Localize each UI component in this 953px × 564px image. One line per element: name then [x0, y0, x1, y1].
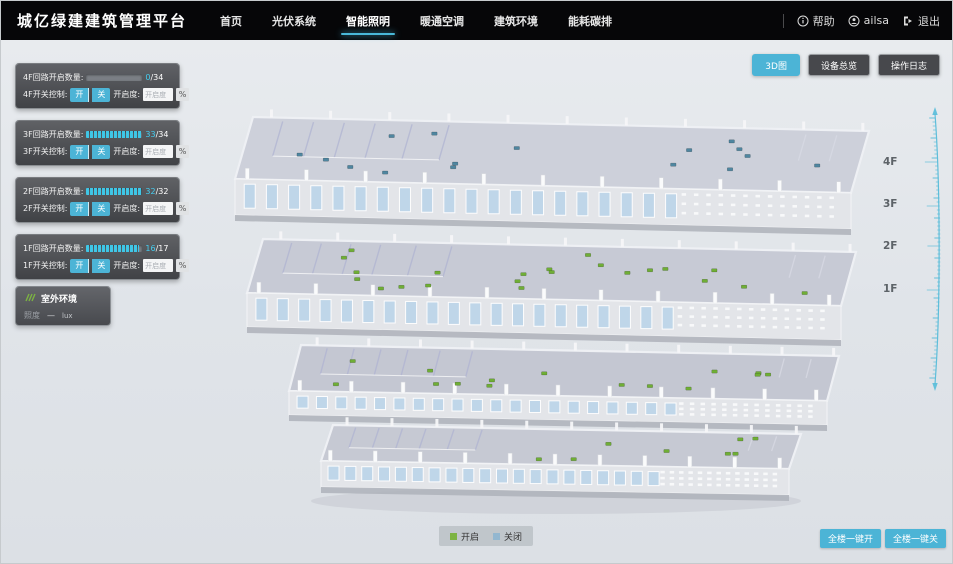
circuit-progress-bar	[86, 131, 142, 138]
dim-label: 开启度:	[113, 89, 140, 100]
outdoor-env-icon	[24, 293, 36, 305]
switch-on-button[interactable]: 开	[70, 88, 89, 102]
dim-input[interactable]	[143, 88, 173, 101]
switch-control-label: 4F开关控制:	[23, 89, 67, 100]
user-menu[interactable]: ailsa	[848, 14, 889, 27]
floor-marker-4f[interactable]: 4F	[883, 156, 897, 168]
dim-label: 开启度:	[113, 203, 140, 214]
legend-on-swatch	[450, 533, 457, 540]
illuminance-unit: lux	[62, 312, 73, 320]
floor-panel-2f: 2F回路开启数量: 32/32 2F开关控制: 开 关 开启度: %	[15, 177, 180, 223]
percent-button[interactable]: %	[176, 259, 189, 272]
user-avatar-icon	[848, 15, 860, 27]
operation-log-button[interactable]: 操作日志	[878, 54, 940, 76]
dim-input[interactable]	[143, 202, 173, 215]
illuminance-value: —	[47, 311, 55, 320]
floor-panel-3f: 3F回路开启数量: 33/34 3F开关控制: 开 关 开启度: %	[15, 120, 180, 166]
device-overview-button[interactable]: 设备总览	[808, 54, 870, 76]
legend-off-label: 关闭	[504, 530, 522, 543]
circuit-progress-bar	[86, 245, 142, 252]
switch-off-button[interactable]: 关	[92, 202, 110, 216]
dim-label: 开启度:	[113, 146, 140, 157]
floor-marker-2f[interactable]: 2F	[883, 240, 897, 252]
view-3d-button[interactable]: 3D图	[752, 54, 800, 76]
help-button[interactable]: 帮助	[797, 13, 835, 29]
switch-off-button[interactable]: 关	[92, 88, 110, 102]
dim-label: 开启度:	[113, 260, 140, 271]
switch-on-button[interactable]: 开	[70, 202, 89, 216]
circuit-count-value: 16/17	[145, 244, 168, 253]
percent-button[interactable]: %	[176, 88, 189, 101]
legend-off-swatch	[493, 533, 500, 540]
legend-on-label: 开启	[461, 530, 479, 543]
legend-item-on: 开启	[450, 530, 479, 543]
app-window: 城亿绿建建筑管理平台 首页 光伏系统 智能照明 暖通空调 建筑环境 能耗碳排 帮…	[0, 0, 953, 564]
nav-item-environment[interactable]: 建筑环境	[479, 0, 553, 42]
dim-input[interactable]	[143, 145, 173, 158]
outdoor-env-title: 室外环境	[41, 292, 77, 305]
logout-button[interactable]: 退出	[902, 13, 940, 29]
building-3d-view[interactable]	[1, 40, 953, 564]
percent-button[interactable]: %	[176, 145, 189, 158]
app-title: 城亿绿建建筑管理平台	[17, 10, 187, 31]
floor-scale-ruler[interactable]	[919, 104, 945, 394]
switch-off-button[interactable]: 关	[92, 259, 110, 273]
circuit-count-label: 2F回路开启数量:	[23, 186, 83, 197]
content-area: 4F回路开启数量: 0/34 4F开关控制: 开 关 开启度: % 3F回路开启…	[1, 40, 952, 563]
switch-control-label: 2F开关控制:	[23, 203, 67, 214]
all-off-button[interactable]: 全楼一键关	[885, 529, 946, 548]
circuit-count-value: 32/32	[145, 187, 168, 196]
username: ailsa	[864, 14, 889, 27]
nav-item-lighting[interactable]: 智能照明	[331, 0, 405, 42]
info-icon	[797, 15, 809, 27]
dim-input[interactable]	[143, 259, 173, 272]
lights-legend: 开启 关闭	[439, 526, 533, 546]
nav-item-home[interactable]: 首页	[205, 0, 257, 42]
header-divider	[783, 14, 784, 28]
switch-on-button[interactable]: 开	[70, 145, 89, 159]
circuit-count-label: 4F回路开启数量:	[23, 72, 83, 83]
illuminance-label: 照度	[24, 310, 40, 321]
bulk-actions: 全楼一键开 全楼一键关	[820, 529, 946, 548]
switch-control-label: 3F开关控制:	[23, 146, 67, 157]
circuit-count-value: 33/34	[145, 130, 168, 139]
logout-icon	[902, 15, 914, 27]
percent-button[interactable]: %	[176, 202, 189, 215]
floor-panel-4f: 4F回路开启数量: 0/34 4F开关控制: 开 关 开启度: %	[15, 63, 180, 109]
view-switcher: 3D图 设备总览 操作日志	[752, 54, 940, 76]
circuit-count-label: 1F回路开启数量:	[23, 243, 83, 254]
circuit-progress-bar	[86, 74, 142, 81]
outdoor-env-panel: 室外环境 照度 — lux	[15, 286, 111, 326]
floor-marker-1f[interactable]: 1F	[883, 283, 897, 295]
nav-item-pv[interactable]: 光伏系统	[257, 0, 331, 42]
floor-panel-1f: 1F回路开启数量: 16/17 1F开关控制: 开 关 开启度: %	[15, 234, 180, 280]
logout-label: 退出	[918, 13, 940, 29]
legend-item-off: 关闭	[493, 530, 522, 543]
circuit-count-label: 3F回路开启数量:	[23, 129, 83, 140]
circuit-count-value: 0/34	[145, 73, 163, 82]
user-area: 帮助 ailsa 退出	[783, 13, 940, 29]
floor-marker-3f[interactable]: 3F	[883, 198, 897, 210]
all-on-button[interactable]: 全楼一键开	[820, 529, 881, 548]
switch-off-button[interactable]: 关	[92, 145, 110, 159]
top-bar: 城亿绿建建筑管理平台 首页 光伏系统 智能照明 暖通空调 建筑环境 能耗碳排 帮…	[1, 1, 952, 40]
switch-control-label: 1F开关控制:	[23, 260, 67, 271]
help-label: 帮助	[813, 13, 835, 29]
main-nav: 首页 光伏系统 智能照明 暖通空调 建筑环境 能耗碳排	[205, 0, 627, 42]
circuit-progress-bar	[86, 188, 142, 195]
nav-item-energy[interactable]: 能耗碳排	[553, 0, 627, 42]
switch-on-button[interactable]: 开	[70, 259, 89, 273]
nav-item-hvac[interactable]: 暖通空调	[405, 0, 479, 42]
